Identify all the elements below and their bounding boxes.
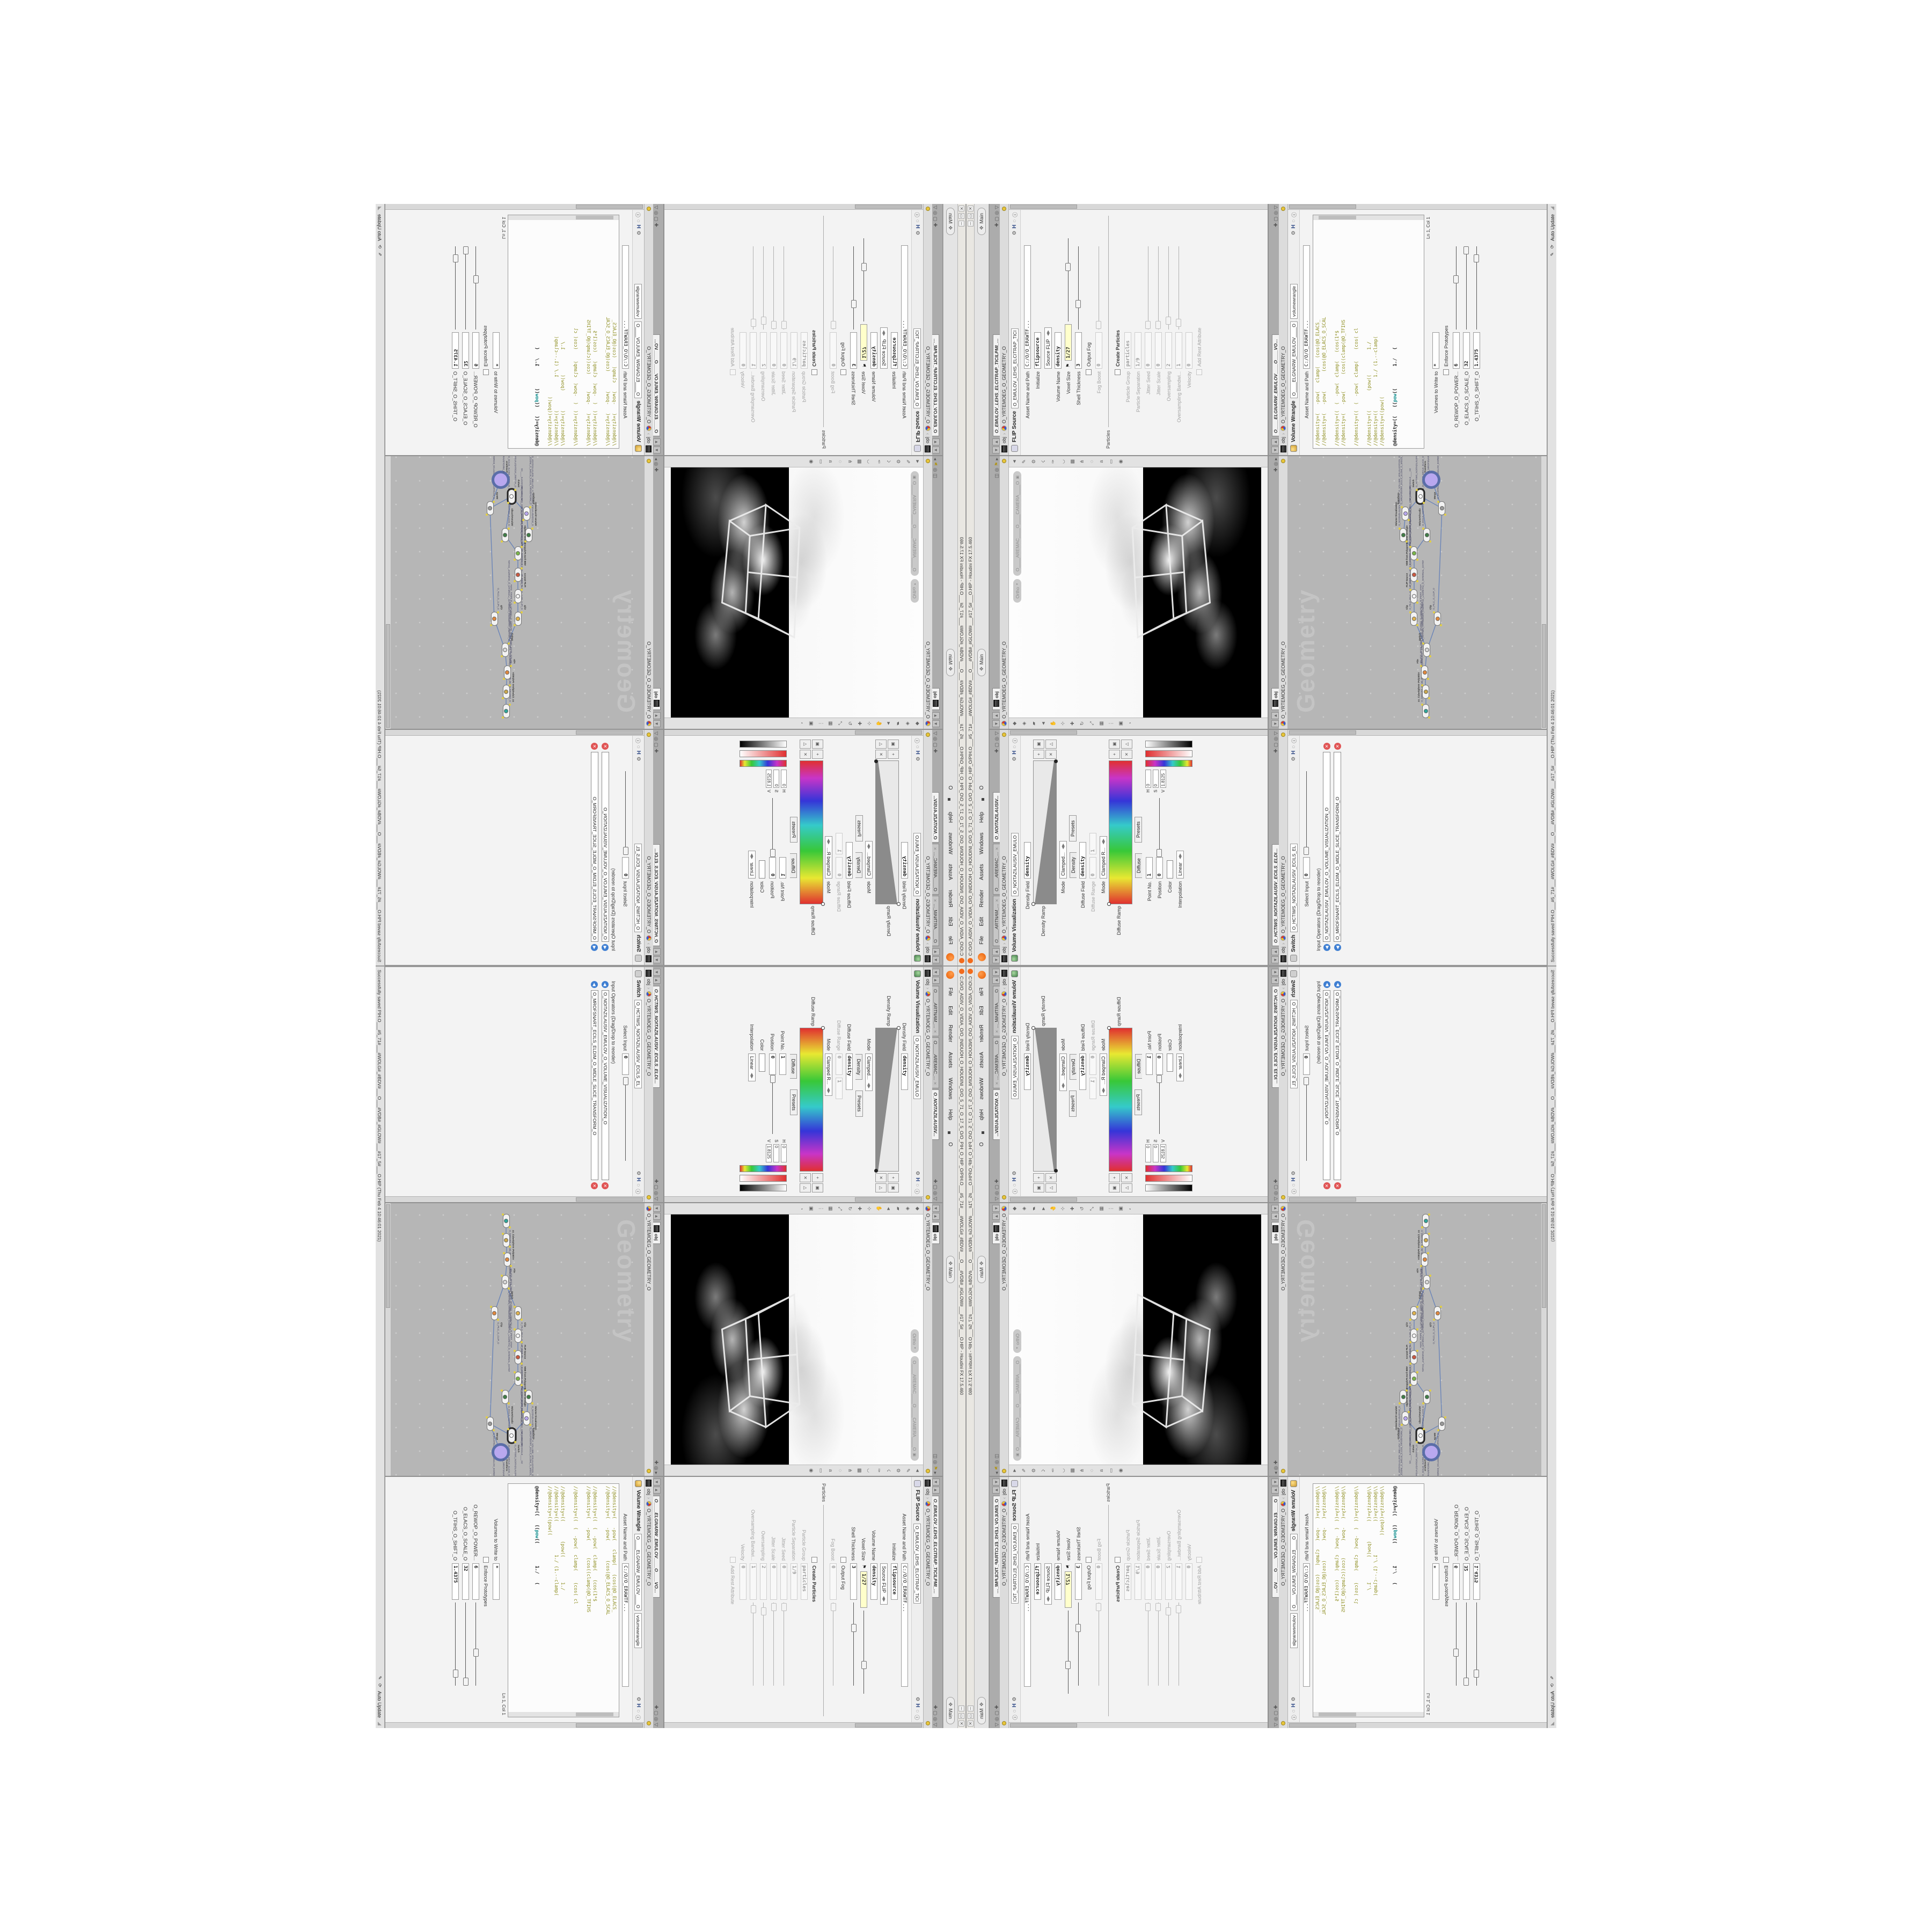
hand-icon[interactable]: ✑	[875, 1467, 883, 1475]
smooth-shade-icon[interactable]: ◈	[904, 1205, 912, 1213]
pin-icon[interactable]	[1002, 207, 1006, 211]
flat-shade-icon[interactable]: ▰	[895, 1205, 902, 1213]
pane-forward-icon[interactable]: ▲	[992, 438, 1000, 445]
context-label[interactable]: obj	[646, 437, 652, 443]
saturation-input[interactable]: 0	[1153, 770, 1159, 788]
rotate-tool-icon[interactable]: ↻	[1078, 720, 1086, 728]
ramp-add-icon[interactable]: +	[1033, 750, 1044, 759]
pane-split-icon[interactable]: ✚	[994, 223, 1000, 227]
ramp-handle-start[interactable]	[1107, 902, 1111, 906]
pane-menu-icon[interactable]: ▽	[1273, 206, 1279, 209]
info-icon[interactable]: ⓘ	[914, 212, 921, 217]
param-input[interactable]: 6	[472, 1563, 479, 1600]
eye-icon[interactable]: ◉	[1117, 458, 1124, 466]
input-operator-field[interactable]: O_NOITAZILAUSIV_EMULOV_O_VOLUME_VISUALIZ…	[1323, 990, 1330, 1180]
ortho-pill[interactable]: Ortho▾	[911, 1329, 919, 1353]
diffuse-mode-dropdown[interactable]: Clamped R...◀▶	[825, 1053, 833, 1096]
pane-back-icon[interactable]: ▼	[1271, 1205, 1279, 1212]
value-strip[interactable]	[740, 1184, 787, 1191]
handles-tool-icon[interactable]: ⊹	[1059, 720, 1066, 728]
menu-render[interactable]: Render	[947, 889, 954, 909]
pin-icon[interactable]: ⚑	[932, 462, 938, 466]
view-menu-icon[interactable]: ◔	[798, 1205, 806, 1213]
info-icon[interactable]: ⓘ	[1290, 212, 1298, 217]
pane-split-icon[interactable]: ✚	[994, 749, 1000, 753]
node-name-field[interactable]: O_HCTIWS_NOITAZILAUSIV_ECILS_EL	[635, 844, 642, 932]
node-name-field[interactable]: O_EMULOV_LEHS_ELCITRAP_TICI	[1011, 1524, 1019, 1604]
camera-lock-icon[interactable]: ▣	[913, 475, 917, 479]
pane-target-icon[interactable]: ◎	[994, 737, 1000, 741]
gear-icon[interactable]: ⚙	[1291, 231, 1297, 236]
interpolation-dropdown[interactable]: Linear◀▶	[1176, 1053, 1184, 1081]
menu-assets[interactable]: Assets	[947, 863, 954, 881]
diffuse-range-max[interactable]: 1	[1089, 833, 1096, 854]
hue-input[interactable]: 0	[781, 770, 787, 788]
ramp-flip-icon[interactable]: △	[875, 1183, 887, 1192]
pane-target-icon[interactable]: ◎	[932, 1191, 938, 1195]
node-merge[interactable]	[487, 501, 494, 515]
param-input[interactable]: 3	[850, 332, 857, 369]
diffuse-ramp-widget[interactable]	[800, 760, 823, 904]
desktop-selector[interactable]: ✥ Main	[946, 1256, 955, 1283]
path-label[interactable]: O_YRTEMOEG_O_GEOMETRY_O	[925, 346, 931, 423]
tab-diffuse[interactable]: Diffuse	[791, 853, 797, 878]
network-canvas[interactable]: Geometry xx_CubeSphereO_EREHPS_EBUC_O_CU…	[391, 456, 644, 729]
handles-tool-icon[interactable]: ⊹	[866, 1205, 873, 1213]
update-mode-selector[interactable]: Auto Update	[377, 214, 383, 241]
node-transform[interactable]	[492, 471, 510, 489]
gear-icon[interactable]: ⚙	[1012, 1697, 1018, 1702]
pin-icon[interactable]	[926, 207, 930, 211]
ramp-add-icon[interactable]: +	[888, 750, 899, 759]
gear-icon[interactable]: ⚙	[1012, 1171, 1018, 1176]
info-icon[interactable]: ⓘ	[635, 1715, 642, 1720]
param-slider[interactable]	[860, 1611, 867, 1694]
cube-icon[interactable]: ◫	[994, 1454, 1000, 1459]
reorder-handle-icon[interactable]: ◀	[1323, 944, 1330, 951]
pane-split-icon[interactable]: ✚	[932, 1179, 938, 1183]
view-menu-icon[interactable]: ◔	[1126, 720, 1134, 728]
pane-back-icon[interactable]: ▼	[932, 956, 940, 963]
flag-icon[interactable]: ⚑	[861, 1564, 867, 1569]
select-input-slider[interactable]	[622, 1078, 629, 1161]
pin-icon[interactable]	[1002, 1195, 1006, 1199]
layout-grid-icon[interactable]	[948, 1129, 954, 1135]
context-label[interactable]: obj	[646, 947, 652, 953]
pane-tab[interactable]: O____AREMAC_...✕	[932, 1037, 939, 1088]
smooth-shade-icon[interactable]: ◈	[1020, 720, 1028, 728]
search-icon[interactable]: ◌	[1012, 745, 1018, 749]
minimize-icon[interactable]: ─	[959, 1706, 965, 1711]
delete-icon[interactable]: ✕	[602, 743, 609, 750]
brush-icon[interactable]: ✎	[377, 252, 383, 256]
pane-menu-icon[interactable]: ▽	[1273, 731, 1279, 735]
pane-target-icon[interactable]: ◎	[1273, 1191, 1279, 1195]
pane-tab[interactable]: O____AREMAC_...✕	[932, 844, 939, 895]
update-mode-selector[interactable]: Auto Update	[377, 1691, 383, 1718]
houdini-h-icon[interactable]: H	[1291, 1177, 1297, 1181]
value-input[interactable]: 1.8125	[766, 770, 772, 788]
node-file[interactable]	[1421, 1253, 1428, 1267]
needle-icon[interactable]: ✎	[904, 1467, 912, 1475]
delete-icon[interactable]: ✕	[591, 743, 598, 750]
diffuse-field-input[interactable]: density	[1079, 1053, 1086, 1090]
param-slider[interactable]	[860, 238, 867, 321]
param-input[interactable]: 0	[770, 332, 777, 369]
pane-forward-icon[interactable]: ▲	[992, 1213, 1000, 1220]
pane-split-icon[interactable]: ✚	[994, 1705, 1000, 1709]
tab-density[interactable]: Density	[856, 1054, 863, 1080]
pane-tab[interactable]: obj	[994, 691, 999, 698]
trident-icon[interactable]: ⋔	[1078, 1467, 1086, 1475]
param-input[interactable]: density	[1055, 1563, 1062, 1600]
pane-forward-icon[interactable]: ▲	[992, 977, 1000, 984]
presets-button[interactable]: Presets	[1135, 1089, 1142, 1116]
ramp-handle-end[interactable]	[874, 759, 878, 763]
network-canvas[interactable]: Geometry xx_CubeSphereO_EREHPS_EBUC_O_CU…	[1288, 456, 1541, 729]
camera-pill[interactable]: O____AREMAC____O____CAMERA____O▣	[911, 1356, 919, 1461]
point-no-input[interactable]: 1	[779, 857, 786, 879]
pane-target-icon[interactable]: ◎	[1273, 1466, 1279, 1470]
node-clip[interactable]	[1410, 1306, 1417, 1320]
select-tool-icon[interactable]: ◄	[885, 720, 892, 728]
update-mode-selector[interactable]: Auto Update	[1550, 1691, 1555, 1718]
ramp-copy-icon[interactable]: ▣	[888, 740, 899, 749]
desktop-selector[interactable]: ✥ Main	[977, 649, 986, 676]
rotate-tool-icon[interactable]: ↻	[846, 1205, 854, 1213]
hand-icon[interactable]: ✑	[1049, 1467, 1057, 1475]
pane-back-icon[interactable]: ▼	[992, 956, 1000, 963]
scrollbar-horizontal[interactable]	[385, 456, 391, 729]
node-transform[interactable]	[1402, 1411, 1409, 1425]
scale-tool-icon[interactable]: ⤢	[1088, 1205, 1095, 1213]
pane-menu-icon[interactable]: ▽	[653, 1197, 659, 1201]
param-input[interactable]: 1.4375	[1473, 1563, 1480, 1600]
render-region-icon[interactable]: ▣	[1117, 1205, 1124, 1213]
pane-split-icon[interactable]: ✚	[653, 467, 659, 472]
node-volumevisualiz[interactable]	[502, 528, 509, 542]
info-icon[interactable]: ⓘ	[914, 1715, 921, 1720]
houdini-h-icon[interactable]: H	[1012, 1703, 1018, 1707]
houdini-logo-icon[interactable]	[978, 953, 986, 961]
menu-file[interactable]: File	[947, 935, 954, 946]
ramp-handle-start[interactable]	[897, 1026, 901, 1030]
input-operator-field[interactable]: O_MROFSNART_ECILS_ELDIM_O_MIDLE_SLICE_TR…	[591, 752, 598, 942]
hue-strip[interactable]	[740, 1165, 787, 1172]
view-tool-icon[interactable]: ✋	[875, 1205, 883, 1213]
text-abc-icon[interactable]: a	[827, 1467, 835, 1475]
checkbox[interactable]	[1196, 369, 1202, 375]
saturation-strip[interactable]	[740, 750, 787, 757]
param-input[interactable]: C:/O/O_ERAWTF...	[1024, 1563, 1031, 1687]
info-icon[interactable]: ⓘ	[1290, 1189, 1298, 1194]
dropdown[interactable]: Source FLIP◀▶	[1044, 327, 1052, 369]
point-no-input[interactable]: 1	[1146, 857, 1153, 879]
flat-shade-icon[interactable]: ▰	[1030, 1205, 1037, 1213]
node-name-field[interactable]: O_HCTIWS_NOITAZILAUSIV_ECILS_EL	[635, 1000, 642, 1088]
node-flip-source[interactable]	[515, 589, 522, 603]
search-icon[interactable]: ◌	[1012, 1184, 1018, 1187]
sync-icon[interactable]: ⟳	[1549, 1684, 1555, 1687]
node-volumevisualiz[interactable]	[502, 1390, 509, 1404]
flat-shade-icon[interactable]: ▰	[1030, 720, 1037, 728]
translate-tool-icon[interactable]: ✚	[856, 720, 863, 728]
param-input[interactable]: C:/O/O_ERAWTF...	[901, 245, 908, 369]
hand-icon[interactable]: ✑	[875, 458, 883, 466]
select-input-field[interactable]: 0	[1303, 1053, 1310, 1075]
search-icon[interactable]: ◌	[1291, 1184, 1297, 1187]
pane-menu-icon[interactable]: ▸	[653, 458, 659, 460]
checkbox[interactable]	[1443, 1557, 1449, 1563]
color-swatch[interactable]	[1167, 1053, 1173, 1072]
value-input[interactable]: 1.8125	[1160, 770, 1166, 788]
param-slider[interactable]	[750, 1602, 757, 1686]
menu-help[interactable]: Help	[978, 811, 985, 824]
snap-point-icon[interactable]: ⋮	[817, 1205, 825, 1213]
path-label[interactable]: O_YRTEMOEG_O_GEOMETRY_O	[925, 641, 931, 719]
pane-split-icon[interactable]: ✚	[1273, 749, 1279, 753]
pane-menu-icon[interactable]: ▽	[653, 206, 659, 209]
ramp-add-icon[interactable]: +	[812, 1173, 823, 1182]
handles-tool-icon[interactable]: ⊹	[866, 720, 873, 728]
info-icon[interactable]: ⓘ	[1011, 1715, 1019, 1720]
window-icon[interactable]: ▭	[817, 1467, 825, 1475]
tab-close-icon[interactable]: ✕	[996, 1082, 999, 1085]
pane-forward-icon[interactable]: ▲	[932, 977, 940, 984]
maximize-icon[interactable]: ▭	[968, 213, 974, 219]
pin-icon[interactable]	[1002, 1721, 1006, 1725]
pane-forward-icon[interactable]: ▲	[992, 712, 1000, 719]
pane-split-icon[interactable]: ✚	[653, 1705, 659, 1709]
houdini-h-icon[interactable]: H	[914, 224, 920, 228]
saturation-strip[interactable]	[1145, 1175, 1192, 1182]
param-slider[interactable]	[770, 1602, 777, 1686]
houdini-logo-icon[interactable]	[947, 953, 955, 961]
layout-grid-icon[interactable]	[979, 1129, 985, 1135]
pane-target-icon[interactable]: ◎	[994, 211, 1000, 215]
ramp-flip-icon[interactable]: △	[800, 740, 811, 749]
position-slider[interactable]	[769, 798, 776, 854]
pane-forward-icon[interactable]: ▲	[932, 1213, 940, 1220]
param-input[interactable]: flipsource	[891, 332, 898, 369]
view-menu-icon[interactable]: ◔	[798, 720, 806, 728]
pane-menu-icon[interactable]: ▽	[994, 206, 1000, 209]
param-input[interactable]: 2	[760, 1563, 767, 1600]
param-input[interactable]: flipsource	[1034, 332, 1041, 369]
context-label[interactable]: obj	[1001, 979, 1007, 985]
input-operator-field[interactable]: O_NOITAZILAUSIV_EMULOV_O_VOLUME_VISUALIZ…	[1323, 752, 1330, 942]
path-label[interactable]: O_YRTEMOEG_O_GEOMETRY_O	[1280, 999, 1286, 1076]
path-label[interactable]: O_YRTEMOEG_O_GEOMETRY_O	[1001, 999, 1007, 1076]
ramp-delete-icon[interactable]: ✕	[875, 1173, 887, 1182]
ants-icon[interactable]: ⚙	[1030, 458, 1037, 466]
view-tool-icon[interactable]: ✋	[1049, 720, 1057, 728]
menu-help[interactable]: Help	[978, 1108, 985, 1122]
pane-split-icon[interactable]: ✚	[653, 1460, 659, 1465]
pane-tab[interactable]: O____ARTNAM_...✕	[993, 986, 1000, 1036]
checkbox[interactable]	[840, 1557, 846, 1563]
saturation-input[interactable]: 0	[1153, 1144, 1159, 1162]
pane-target-icon[interactable]: ◎	[653, 462, 659, 466]
saturation-input[interactable]: 0	[773, 1144, 779, 1162]
pane-float-icon[interactable]: ▢	[932, 217, 938, 222]
pane-forward-icon[interactable]: ▲	[1271, 1213, 1279, 1220]
snap-grid-icon[interactable]: ▦	[827, 720, 835, 728]
pane-tab[interactable]: O_NOITAZILAUSIV...	[993, 792, 1000, 843]
houdini-h-icon[interactable]: H	[1291, 1703, 1297, 1707]
ramp-delete-icon[interactable]: ✕	[1121, 750, 1132, 759]
hue-strip[interactable]	[740, 760, 787, 767]
param-slider[interactable]	[1165, 246, 1172, 330]
pane-tab[interactable]: O_HCTIWS_NOITAZILAUSIV_ECILS_ELDIM_O_MID…	[1272, 844, 1279, 946]
position-input[interactable]: 0	[769, 1053, 776, 1075]
param-input[interactable]: 0	[740, 332, 747, 369]
pane-forward-icon[interactable]: ▲	[1271, 977, 1279, 984]
param-slider[interactable]	[830, 246, 837, 330]
info-icon[interactable]: ⓘ	[914, 1189, 921, 1194]
node-switch[interactable]	[508, 489, 515, 503]
pane-float-icon[interactable]: ▢	[653, 1711, 659, 1716]
path-label[interactable]: O_YRTEMOEG_O_GEOMETRY_O	[925, 999, 931, 1076]
node-xx-cubesphere[interactable]	[503, 704, 510, 718]
param-slider[interactable]	[1453, 1602, 1460, 1686]
param-slider[interactable]	[452, 246, 459, 330]
sphere-icon[interactable]: ◌	[837, 458, 844, 466]
position-input[interactable]: 0	[1156, 857, 1163, 879]
houdini-h-icon[interactable]: H	[1012, 750, 1018, 754]
node-polywire[interactable]	[503, 1233, 510, 1247]
pin-icon[interactable]	[647, 207, 651, 211]
network-canvas[interactable]: Geometry xx_CubeSphereO_EREHPS_EBUC_O_CU…	[1288, 1203, 1541, 1476]
pin-icon[interactable]	[926, 1195, 930, 1199]
value-strip[interactable]	[1145, 1184, 1192, 1191]
menu-windows[interactable]: Windows	[978, 831, 985, 855]
pane-forward-icon[interactable]: ▲	[1271, 712, 1279, 719]
pane-menu-icon[interactable]: ▽	[1273, 1723, 1279, 1726]
diffuse-range-min[interactable]: 0	[836, 1053, 843, 1075]
ortho-pill[interactable]: Ortho▾	[1013, 1329, 1021, 1353]
delete-icon[interactable]: ✕	[1334, 1182, 1341, 1189]
info-icon[interactable]: ⓘ	[1011, 212, 1019, 217]
pane-forward-icon[interactable]: ▲	[653, 712, 661, 719]
param-slider[interactable]	[1065, 1611, 1072, 1694]
pane-split-icon[interactable]: ✚	[1273, 1705, 1279, 1709]
pane-tab[interactable]: O_HCTIWS_NOITAZILAUSIV_ECILS_ELDIM_O_MID…	[1272, 986, 1279, 1088]
menu-assets[interactable]: Assets	[978, 1051, 985, 1069]
node-flip-source[interactable]	[515, 1329, 522, 1343]
path-label[interactable]: O_YRTEMOEG_O_GEOMETRY_O	[646, 1509, 652, 1586]
pane-split-icon[interactable]: ✚	[1273, 1179, 1279, 1183]
pin-icon[interactable]	[1281, 1195, 1285, 1199]
select-tool-icon[interactable]: ◄	[1040, 1205, 1047, 1213]
trident-icon[interactable]: ⋔	[846, 1467, 854, 1475]
pane-tab[interactable]: O____ELGNARW_EMULOV____O____VOLUME_WRANG…	[1272, 334, 1279, 436]
saturation-strip[interactable]	[740, 1175, 787, 1182]
node-switch[interactable]	[502, 1275, 509, 1289]
saturation-input[interactable]: 0	[773, 770, 779, 788]
node-name-field[interactable]: O____ELGNARW_EMULOV____O	[635, 321, 642, 398]
pane-tab[interactable]: obj	[654, 1234, 660, 1241]
pane-menu-icon[interactable]: ▽	[994, 1197, 1000, 1201]
camera-lock-icon[interactable]: ▣	[913, 1453, 917, 1457]
node-name-field[interactable]: O_NOITAZILAUSIV_EMULO	[1011, 833, 1019, 896]
node-clip[interactable]	[515, 1306, 522, 1320]
node-polywire[interactable]	[503, 685, 510, 699]
scrollbar-horizontal[interactable]	[1541, 1203, 1547, 1476]
node-switch[interactable]	[508, 1429, 515, 1443]
node-name-field[interactable]: O_NOITAZILAUSIV_EMULO	[914, 1036, 921, 1099]
pane-back-icon[interactable]: ▼	[932, 1479, 940, 1485]
param-input[interactable]: 2	[1165, 1563, 1172, 1600]
houdini-h-icon[interactable]: H	[914, 1177, 920, 1181]
render-region-icon[interactable]: ▣	[1117, 720, 1124, 728]
pane-tab[interactable]: O____ELGNARW_EMULOV____O____VOLUME_WRANG…	[653, 1496, 660, 1598]
info-icon[interactable]: ⓘ	[635, 212, 642, 217]
param-slider[interactable]	[760, 246, 767, 330]
asset-path-input[interactable]: C:/O/O_ERAWTF...	[1303, 245, 1310, 369]
param-slider[interactable]	[1095, 1602, 1102, 1686]
tab-diffuse[interactable]: Diffuse	[791, 1054, 797, 1079]
pane-forward-icon[interactable]: ▲	[653, 948, 661, 955]
reorder-handle-icon[interactable]: ◀	[1334, 944, 1341, 951]
pane-menu-icon[interactable]: ▽	[994, 731, 1000, 735]
param-input[interactable]: 32	[462, 1563, 469, 1600]
checkbox[interactable]	[1086, 369, 1092, 375]
ramp-delete-icon[interactable]: ✕	[875, 750, 887, 759]
path-label[interactable]: O_YRTEMOEG_O_GEOMETRY_O	[925, 1213, 931, 1291]
diffuse-field-input[interactable]: density	[846, 1053, 853, 1090]
pane-target-icon[interactable]: ◎	[653, 211, 659, 215]
pane-back-icon[interactable]: ▼	[992, 1479, 1000, 1485]
input-operator-field[interactable]: O_MROFSNART_ECILS_ELDIM_O_MIDLE_SLICE_TR…	[1334, 990, 1341, 1180]
pane-tab[interactable]: O____AREMAC_...✕	[993, 1037, 1000, 1088]
node-switch[interactable]	[502, 643, 509, 657]
pane-split-icon[interactable]: ✚	[1273, 223, 1279, 227]
diffuse-range-max[interactable]: 1	[836, 833, 843, 854]
param-input[interactable]: density	[1055, 332, 1062, 369]
sync-icon[interactable]: ⟳	[1549, 245, 1555, 248]
param-input[interactable]: 32	[1463, 332, 1470, 369]
camera-pill[interactable]: O____AREMAC____O____CAMERA____O▣	[1013, 1356, 1021, 1461]
viewport-canvas[interactable]: Ortho▾ O____AREMAC____O____CAMERA____O▣ …	[1009, 456, 1268, 729]
param-slider[interactable]	[760, 1602, 767, 1686]
translate-tool-icon[interactable]: ✚	[856, 1205, 863, 1213]
close-icon[interactable]: ✕	[959, 206, 965, 211]
node-clip[interactable]	[1410, 612, 1417, 626]
param-input[interactable]: 1/9	[791, 1563, 797, 1600]
update-mode-selector[interactable]: Auto Update	[1550, 214, 1555, 241]
desktop-selector[interactable]: ✥ Main	[946, 649, 955, 676]
info-icon[interactable]: ⓘ	[1011, 738, 1019, 743]
presets-button[interactable]: Presets	[1135, 817, 1142, 843]
param-input[interactable]: *	[493, 1563, 500, 1600]
node-transform[interactable]	[523, 1411, 530, 1425]
ramp-flip-icon[interactable]: △	[1045, 740, 1057, 749]
tab-close-icon[interactable]: ✕	[933, 899, 936, 902]
handles-tool-icon[interactable]: ⊹	[1059, 1205, 1066, 1213]
param-input[interactable]: 1	[1175, 1563, 1182, 1600]
ramp-handle-end[interactable]	[874, 1169, 878, 1173]
param-slider[interactable]	[1473, 1602, 1480, 1686]
take-selector[interactable]: ✥ Main	[946, 1697, 955, 1724]
search-icon[interactable]: ◌	[635, 745, 641, 749]
brush-icon[interactable]: ✎	[377, 1676, 383, 1680]
checkbox[interactable]	[730, 369, 736, 375]
param-input[interactable]: 0	[830, 332, 837, 369]
hue-input[interactable]: 0	[781, 1144, 787, 1162]
pane-forward-icon[interactable]: ▲	[1271, 438, 1279, 445]
select-input-field[interactable]: 0	[1303, 857, 1310, 879]
